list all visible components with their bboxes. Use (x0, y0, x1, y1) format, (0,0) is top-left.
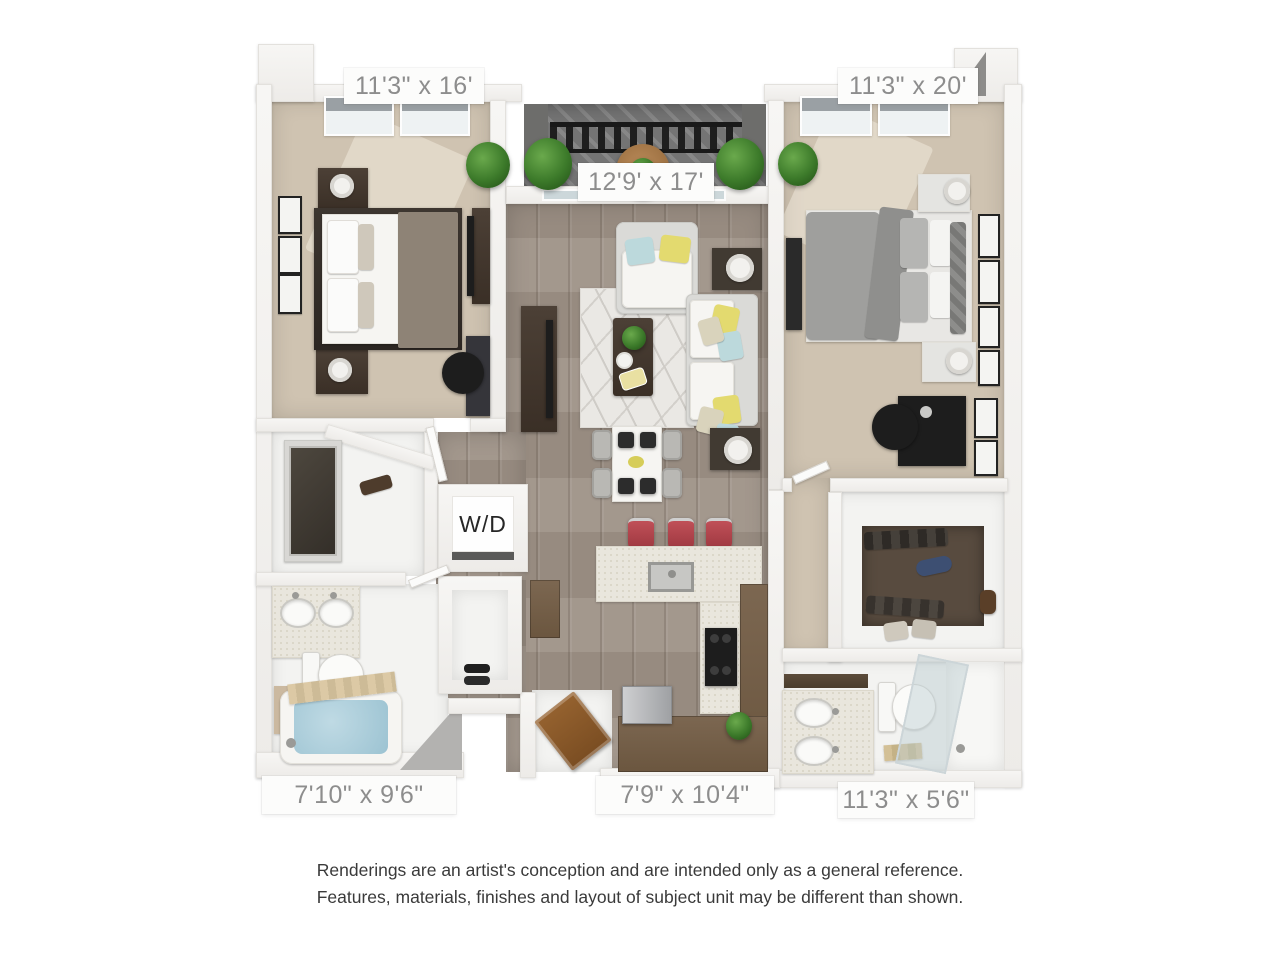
labels-group: 11'3" x 16' 12'9' x 17' 11'3" x 20' 7'10… (0, 0, 1280, 960)
disclaimer-line-2: Features, materials, finishes and layout… (0, 884, 1280, 911)
bedroom-right-dimension-plaque: 11'3" x 20' (838, 68, 978, 104)
bathroom-right-dimension: 11'3" x 5'6" (842, 786, 969, 815)
bathroom-left-dimension: 7'10" x 9'6" (294, 781, 423, 810)
disclaimer-text: Renderings are an artist's conception an… (0, 857, 1280, 911)
bathroom-left-dimension-plaque: 7'10" x 9'6" (262, 776, 456, 814)
balcony-dimension-plaque: 12'9' x 17' (578, 163, 714, 201)
disclaimer-line-1: Renderings are an artist's conception an… (0, 857, 1280, 884)
balcony-dimension: 12'9' x 17' (588, 168, 704, 197)
bedroom-left-dimension-plaque: 11'3" x 16' (344, 68, 484, 104)
floorplan-page: W/D (0, 0, 1280, 960)
bathroom-right-dimension-plaque: 11'3" x 5'6" (838, 782, 974, 818)
bedroom-right-dimension: 11'3" x 20' (849, 72, 967, 101)
kitchen-dimension-plaque: 7'9" x 10'4" (596, 776, 774, 814)
kitchen-dimension: 7'9" x 10'4" (620, 781, 749, 810)
bedroom-left-dimension: 11'3" x 16' (355, 72, 473, 101)
